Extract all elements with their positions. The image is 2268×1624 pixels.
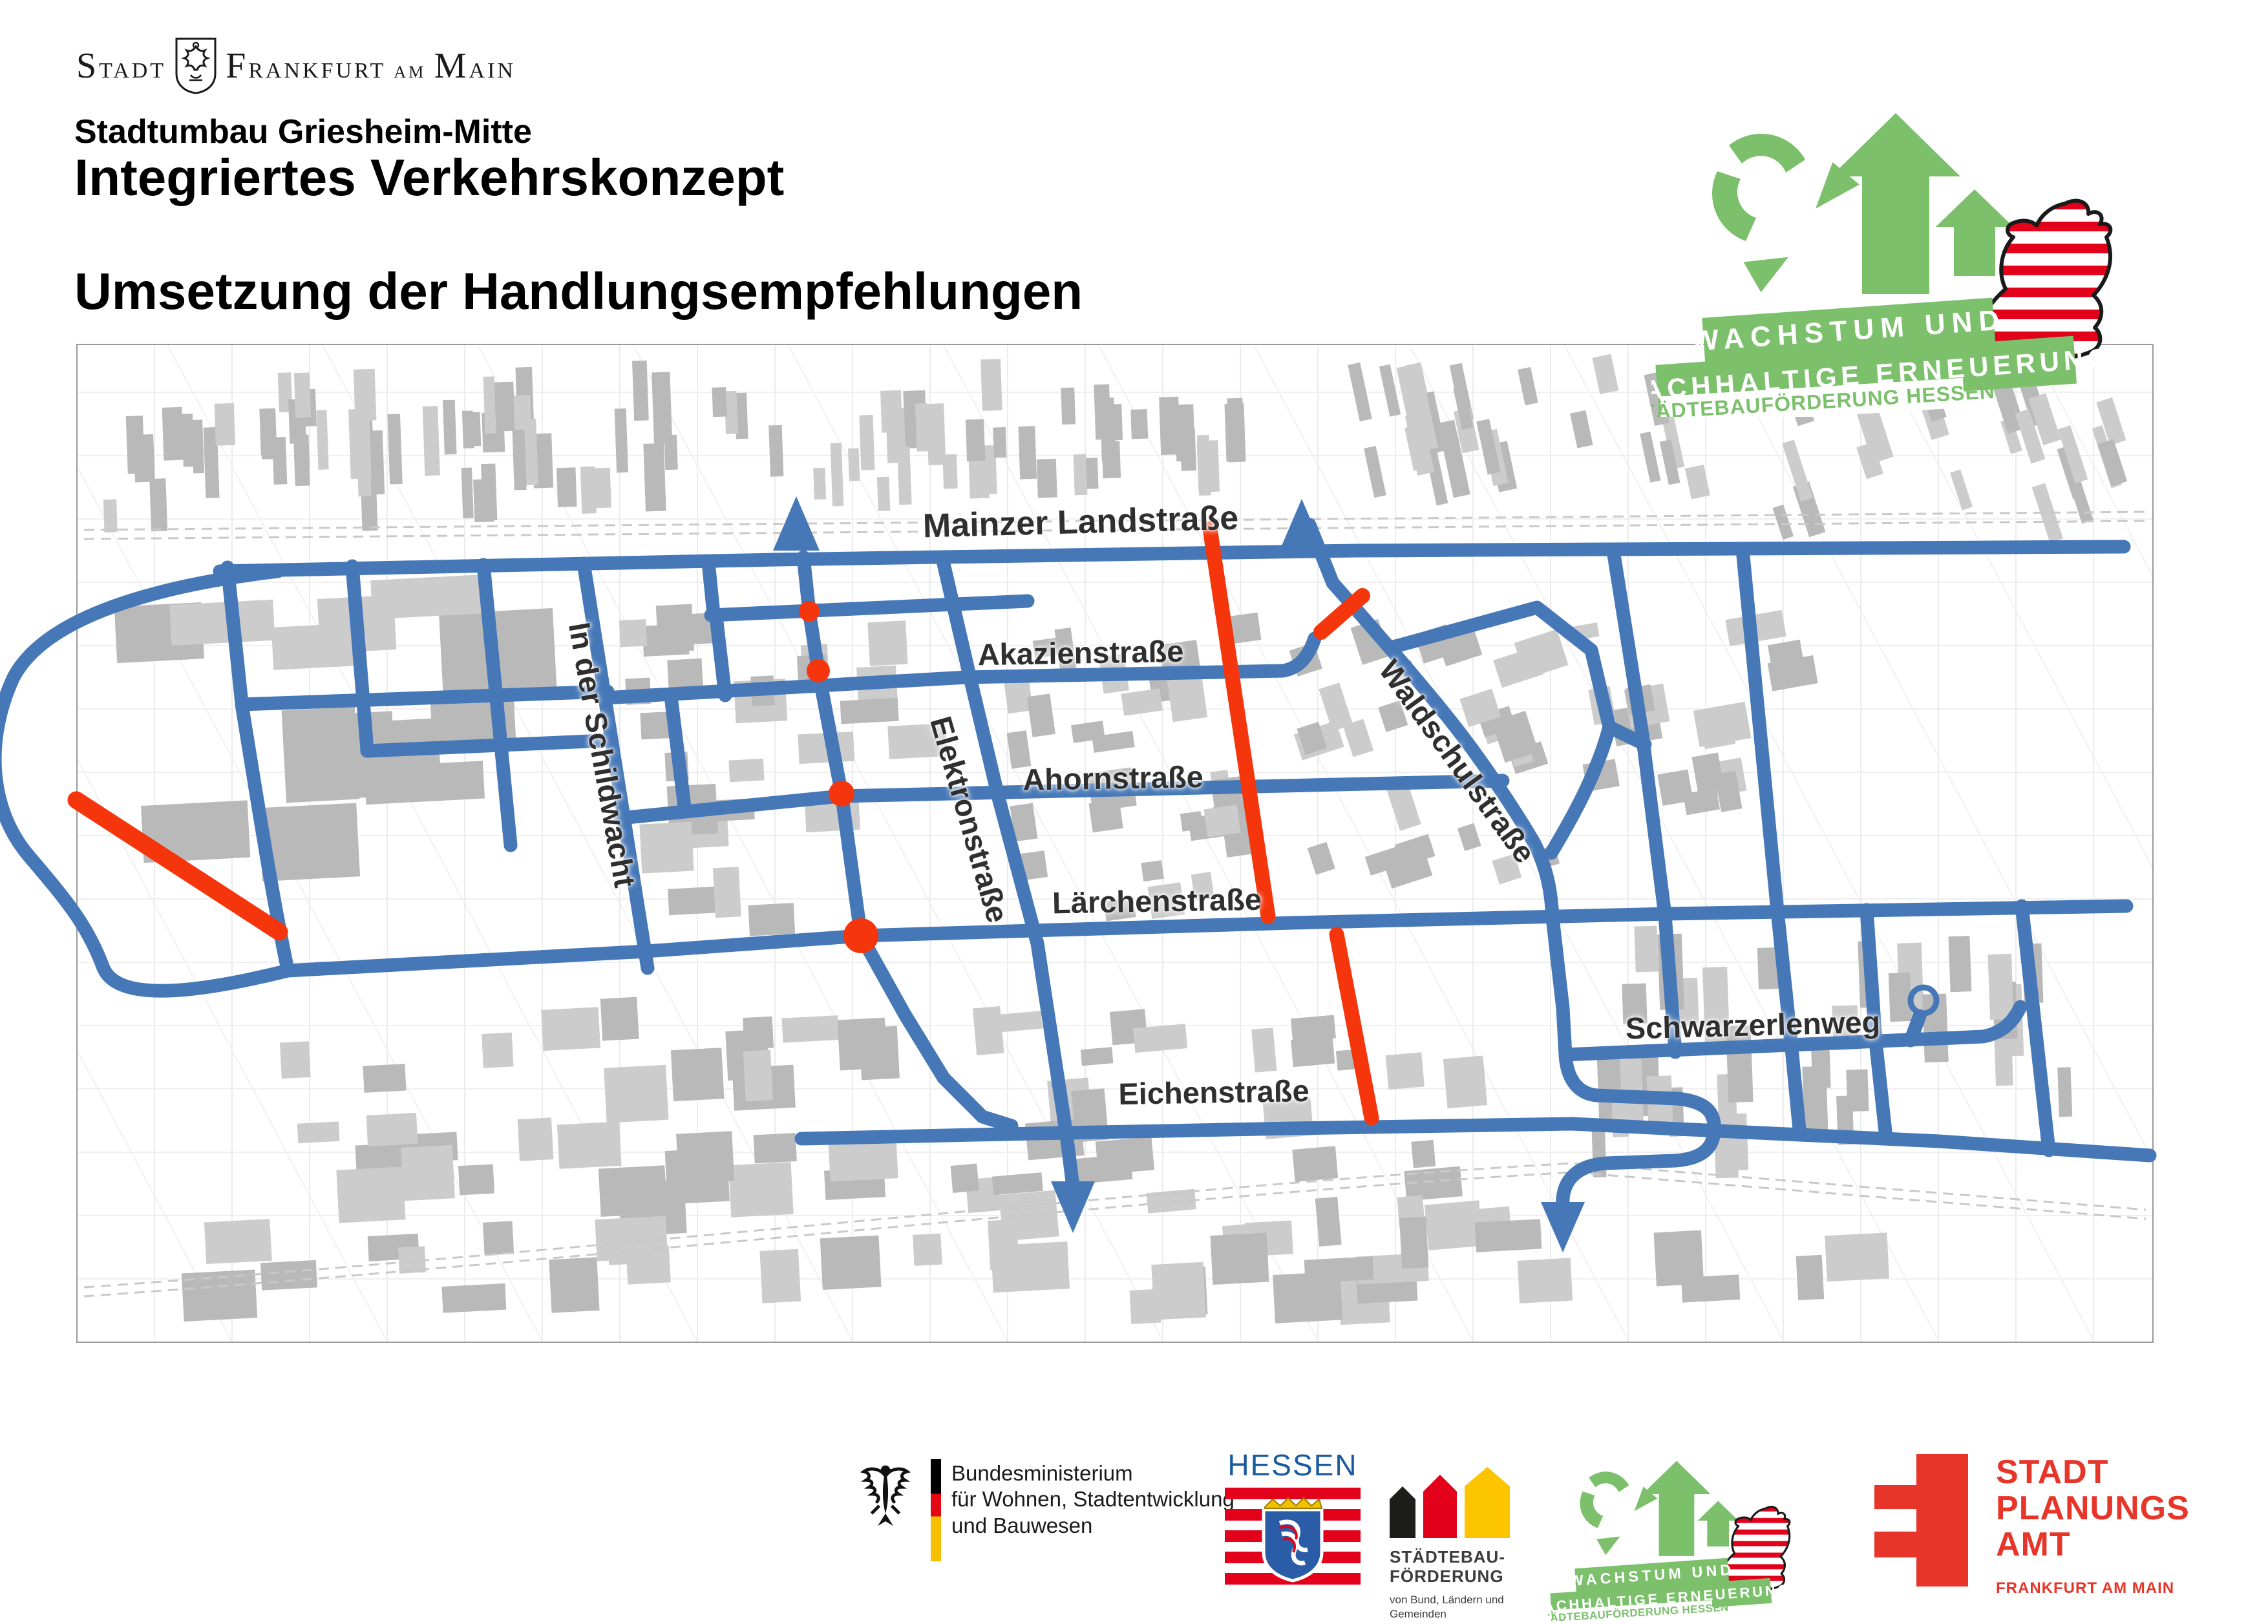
spa-line1: STADT [1996, 1454, 2190, 1490]
bundesadler-icon [847, 1459, 924, 1537]
traffic-concept-map [76, 344, 2154, 1343]
poster-title: Integriertes Verkehrskonzept [74, 151, 784, 205]
frankfurt-eagle-shield-icon [175, 37, 217, 94]
wachstum-erneuerung-logo-small: WACHSTUM UND NACHHALTIGE ERNEUERUNG STÄD… [1548, 1457, 1807, 1621]
bmwsb-line2: für Wohnen, Stadtentwicklung [951, 1486, 1235, 1512]
bmwsb-line1: Bundesministerium [951, 1461, 1235, 1486]
poster-page: { "header": { "city_logo_stadt": "Stadt"… [0, 0, 2268, 1603]
title-block: Stadtumbau Griesheim-Mitte Integriertes … [74, 113, 784, 205]
footer-logos: Bundesministerium für Wohnen, Stadtentwi… [0, 1441, 2268, 1603]
spa-line3: AMT [1996, 1526, 2190, 1563]
bmwsb-line3: und Bauwesen [951, 1513, 1235, 1539]
street-label-mainzer-landstrasse: Mainzer Landstraße [922, 499, 1239, 546]
street-label-laerchenstrasse: Lärchenstraße [1052, 881, 1262, 921]
flag-bar-icon [931, 1459, 941, 1561]
stadtplanungsamt-logo: STADT PLANUNGS AMT FRANKFURT AM MAIN [1861, 1454, 2190, 1598]
staedtebau-small2: Gemeinden [1390, 1608, 1447, 1620]
recycle-arrows-icon [1580, 1471, 1657, 1555]
stadtplanungsamt-mark-icon [1861, 1454, 1978, 1587]
hessen-flag-icon [1225, 1488, 1361, 1585]
frankfurt-city-logo: STADT FRANKFURT AM MAIN [76, 37, 516, 94]
spa-line2: PLANUNGS [1996, 1490, 2190, 1526]
wachstum-erneuerung-logo: WACHSTUM UND NACHHALTIGE ERNEUERUNG STÄD… [1651, 107, 2143, 417]
city-logo-stadt-label: STADT [76, 45, 166, 87]
spa-subline: FRANKFURT AM MAIN [1996, 1579, 2190, 1598]
city-logo-stadt-text: TADT [99, 59, 166, 83]
hessen-logo: HESSEN [1225, 1448, 1361, 1588]
staedtebaufoerderung-logo: STÄDTEBAU- FÖRDERUNG von Bund, Ländern u… [1390, 1467, 1532, 1621]
street-label-ahornstrasse: Ahornstraße [1023, 759, 1203, 797]
bundesministerium-logo: Bundesministerium für Wohnen, Stadtentwi… [847, 1459, 1235, 1561]
recycle-arrows-icon [1712, 134, 1860, 292]
growth-arrow-icon [1831, 113, 2013, 294]
poster-heading: Umsetzung der Handlungsempfehlungen [74, 262, 1083, 321]
staedtebau-small1: von Bund, Ländern und [1390, 1594, 1504, 1606]
poster-subtitle: Stadtumbau Griesheim-Mitte [74, 113, 784, 151]
hessen-wordmark: HESSEN [1225, 1448, 1361, 1482]
city-logo-name-label: FRANKFURT AM MAIN [226, 45, 516, 87]
staedtebau-line2: FÖRDERUNG [1390, 1566, 1504, 1586]
street-label-akazienstrasse: Akazienstraße [977, 633, 1184, 673]
street-label-eichenstrasse: Eichenstraße [1118, 1073, 1309, 1112]
street-label-schwarzerlenweg: Schwarzerlenweg [1625, 1004, 1881, 1046]
houses-icon [1390, 1467, 1519, 1538]
staedtebau-line1: STÄDTEBAU- [1390, 1547, 1505, 1566]
growth-arrow-icon [1642, 1461, 1738, 1555]
